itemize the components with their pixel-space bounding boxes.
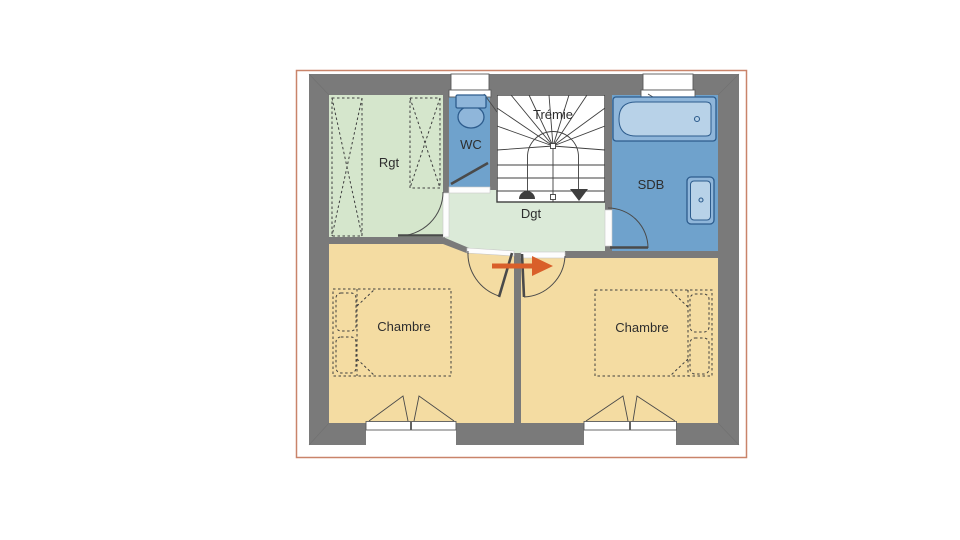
- wall-wc-stair: [490, 95, 497, 190]
- bedroom-right-door-threshold: [521, 252, 565, 258]
- stair-newel-top: [551, 144, 556, 149]
- wall-stair-bathroom: [605, 95, 612, 210]
- bathtub: [613, 97, 716, 141]
- wc-door-threshold: [449, 187, 490, 193]
- wall-left: [309, 74, 329, 445]
- room-bedroom-right-floor: [521, 253, 718, 423]
- wall-bedroom-right-top: [565, 251, 718, 258]
- washbasin: [687, 177, 714, 224]
- bathroom-door-threshold: [605, 210, 612, 246]
- wall-storage-bedroom: [329, 237, 445, 244]
- storage-door-threshold: [443, 193, 449, 237]
- label-bedroom-left: Chambre: [377, 319, 430, 334]
- floor-plan-drawing: Rgt WC Trémie SDB Dgt Chambre Chambre: [0, 0, 960, 540]
- floor-plan-page: Rgt WC Trémie SDB Dgt Chambre Chambre: [0, 0, 960, 540]
- wall-bedroom-divider: [514, 253, 521, 423]
- label-storage: Rgt: [379, 155, 400, 170]
- label-bathroom: SDB: [638, 177, 665, 192]
- wall-storage-wc: [443, 95, 449, 193]
- label-wc: WC: [460, 137, 482, 152]
- label-hallway: Dgt: [521, 206, 542, 221]
- stair-newel-bottom: [551, 195, 556, 200]
- label-stairwell: Trémie: [533, 107, 573, 122]
- wall-right: [718, 74, 739, 445]
- label-bedroom-right: Chambre: [615, 320, 668, 335]
- toilet: [456, 95, 486, 128]
